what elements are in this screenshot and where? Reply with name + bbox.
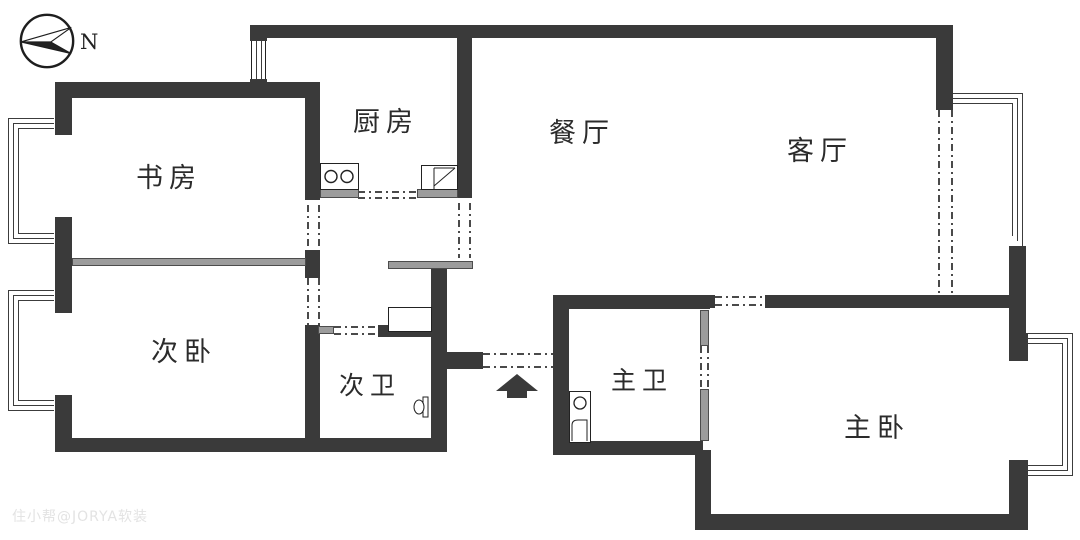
wall-top-exterior xyxy=(250,25,953,38)
watermark: 住小帮@JORYA软装 xyxy=(12,506,148,526)
wall-topleft-jut-lower xyxy=(250,79,267,98)
wall-master-bedroom-top xyxy=(765,295,1010,308)
opening-entry-door xyxy=(483,353,553,355)
wall-study-east xyxy=(305,82,320,200)
opening-second-bath-door xyxy=(334,333,379,335)
balcony-window-living xyxy=(953,103,1013,236)
north-compass-icon xyxy=(16,10,78,72)
opening-kitchen xyxy=(358,197,418,199)
room-label-master-bedroom: 主卧 xyxy=(844,406,910,445)
wall-second-bath-west xyxy=(305,325,320,452)
second-bath-door-leaf xyxy=(318,326,334,334)
sink-icon xyxy=(421,165,458,190)
bay-window-study xyxy=(18,128,54,234)
opening-master-bedroom-door xyxy=(715,304,765,306)
wall-master-bath-west xyxy=(553,295,569,455)
master-bath-door-jamb-upper xyxy=(700,310,709,346)
room-label-dining: 餐厅 xyxy=(549,111,615,150)
wall-kitchen-east xyxy=(457,38,472,198)
wall-entry-south xyxy=(443,352,483,369)
toilet-icon xyxy=(413,396,429,418)
compass-north-label: N xyxy=(80,30,98,54)
bay-window-second-bedroom xyxy=(18,300,54,401)
opening-master-bath-door xyxy=(700,346,702,390)
window-kitchen-west xyxy=(261,41,262,79)
opening-entry-door xyxy=(483,366,553,368)
room-label-master-bath: 主卫 xyxy=(611,361,673,397)
stove-icon xyxy=(320,163,359,190)
room-label-second-bedroom: 次卧 xyxy=(151,330,217,369)
wall-topleft-jut-upper xyxy=(250,25,267,41)
opening-master-bedroom-door xyxy=(715,296,765,298)
wall-master-bath-top xyxy=(553,295,710,309)
opening-dining-hall xyxy=(469,203,471,258)
opening-study-door xyxy=(318,205,320,250)
floor-plan: N 书房 厨房 餐厅 客厅 次卧 次卫 主卫 主卧 住小帮@JORYA软装 xyxy=(0,0,1080,540)
wall-corridor-stub xyxy=(305,250,320,278)
opening-second-bath-door xyxy=(334,326,379,328)
window-kitchen-west xyxy=(251,41,266,79)
entry-arrow-icon xyxy=(494,372,540,400)
partition-study-bedroom xyxy=(72,258,306,266)
wall-hall-column xyxy=(431,269,447,452)
wall-left-block-bottom xyxy=(55,438,445,452)
hall-cabinet xyxy=(388,307,432,332)
wall-right-mid xyxy=(1009,246,1026,333)
room-label-kitchen: 厨房 xyxy=(353,100,419,139)
wall-master-bedroom-bottom xyxy=(695,514,1025,530)
wall-master-bedroom-west xyxy=(695,450,711,530)
room-label-second-bath: 次卫 xyxy=(339,366,401,402)
wall-master-bath-bottom xyxy=(553,441,703,455)
room-label-study: 书房 xyxy=(136,156,202,195)
opening-dining-hall xyxy=(458,203,460,258)
opening-study-door xyxy=(307,205,309,250)
hall-shelf xyxy=(388,261,473,269)
bay-window-master-bedroom xyxy=(1026,343,1063,466)
washbasin-icon xyxy=(569,391,591,443)
opening-balcony-slider xyxy=(938,110,940,295)
opening-second-bedroom-door xyxy=(307,278,309,325)
wall-left-stub-upper xyxy=(55,82,72,135)
room-label-living: 客厅 xyxy=(787,129,853,168)
opening-kitchen xyxy=(358,191,418,193)
kitchen-counter-right xyxy=(417,189,458,198)
master-bath-door-jamb-lower xyxy=(700,389,709,441)
window-kitchen-west xyxy=(256,41,257,79)
wall-topright-corner xyxy=(936,25,953,110)
opening-master-bath-door xyxy=(707,346,709,390)
kitchen-counter-left xyxy=(320,189,359,198)
wall-study-top xyxy=(55,82,320,98)
opening-second-bedroom-door xyxy=(318,278,320,325)
wall-left-stub-middle xyxy=(55,217,72,313)
